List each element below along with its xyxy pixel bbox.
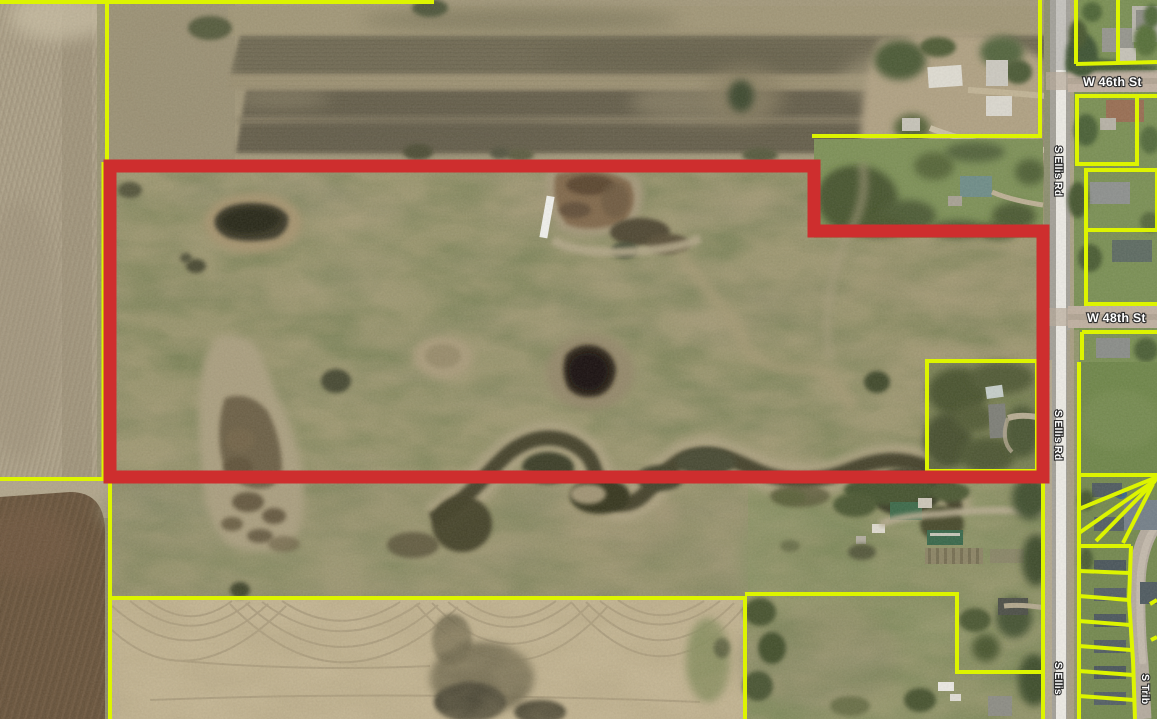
svg-text:S Ellis: S Ellis [1052,662,1064,695]
svg-text:S Ellis Rd: S Ellis Rd [1052,146,1064,196]
svg-text:W 46th St: W 46th St [1083,75,1142,89]
svg-text:S Ellis Rd: S Ellis Rd [1052,410,1064,460]
svg-text:W 48th St: W 48th St [1087,311,1146,325]
svg-text:S Trib: S Trib [1139,674,1151,704]
